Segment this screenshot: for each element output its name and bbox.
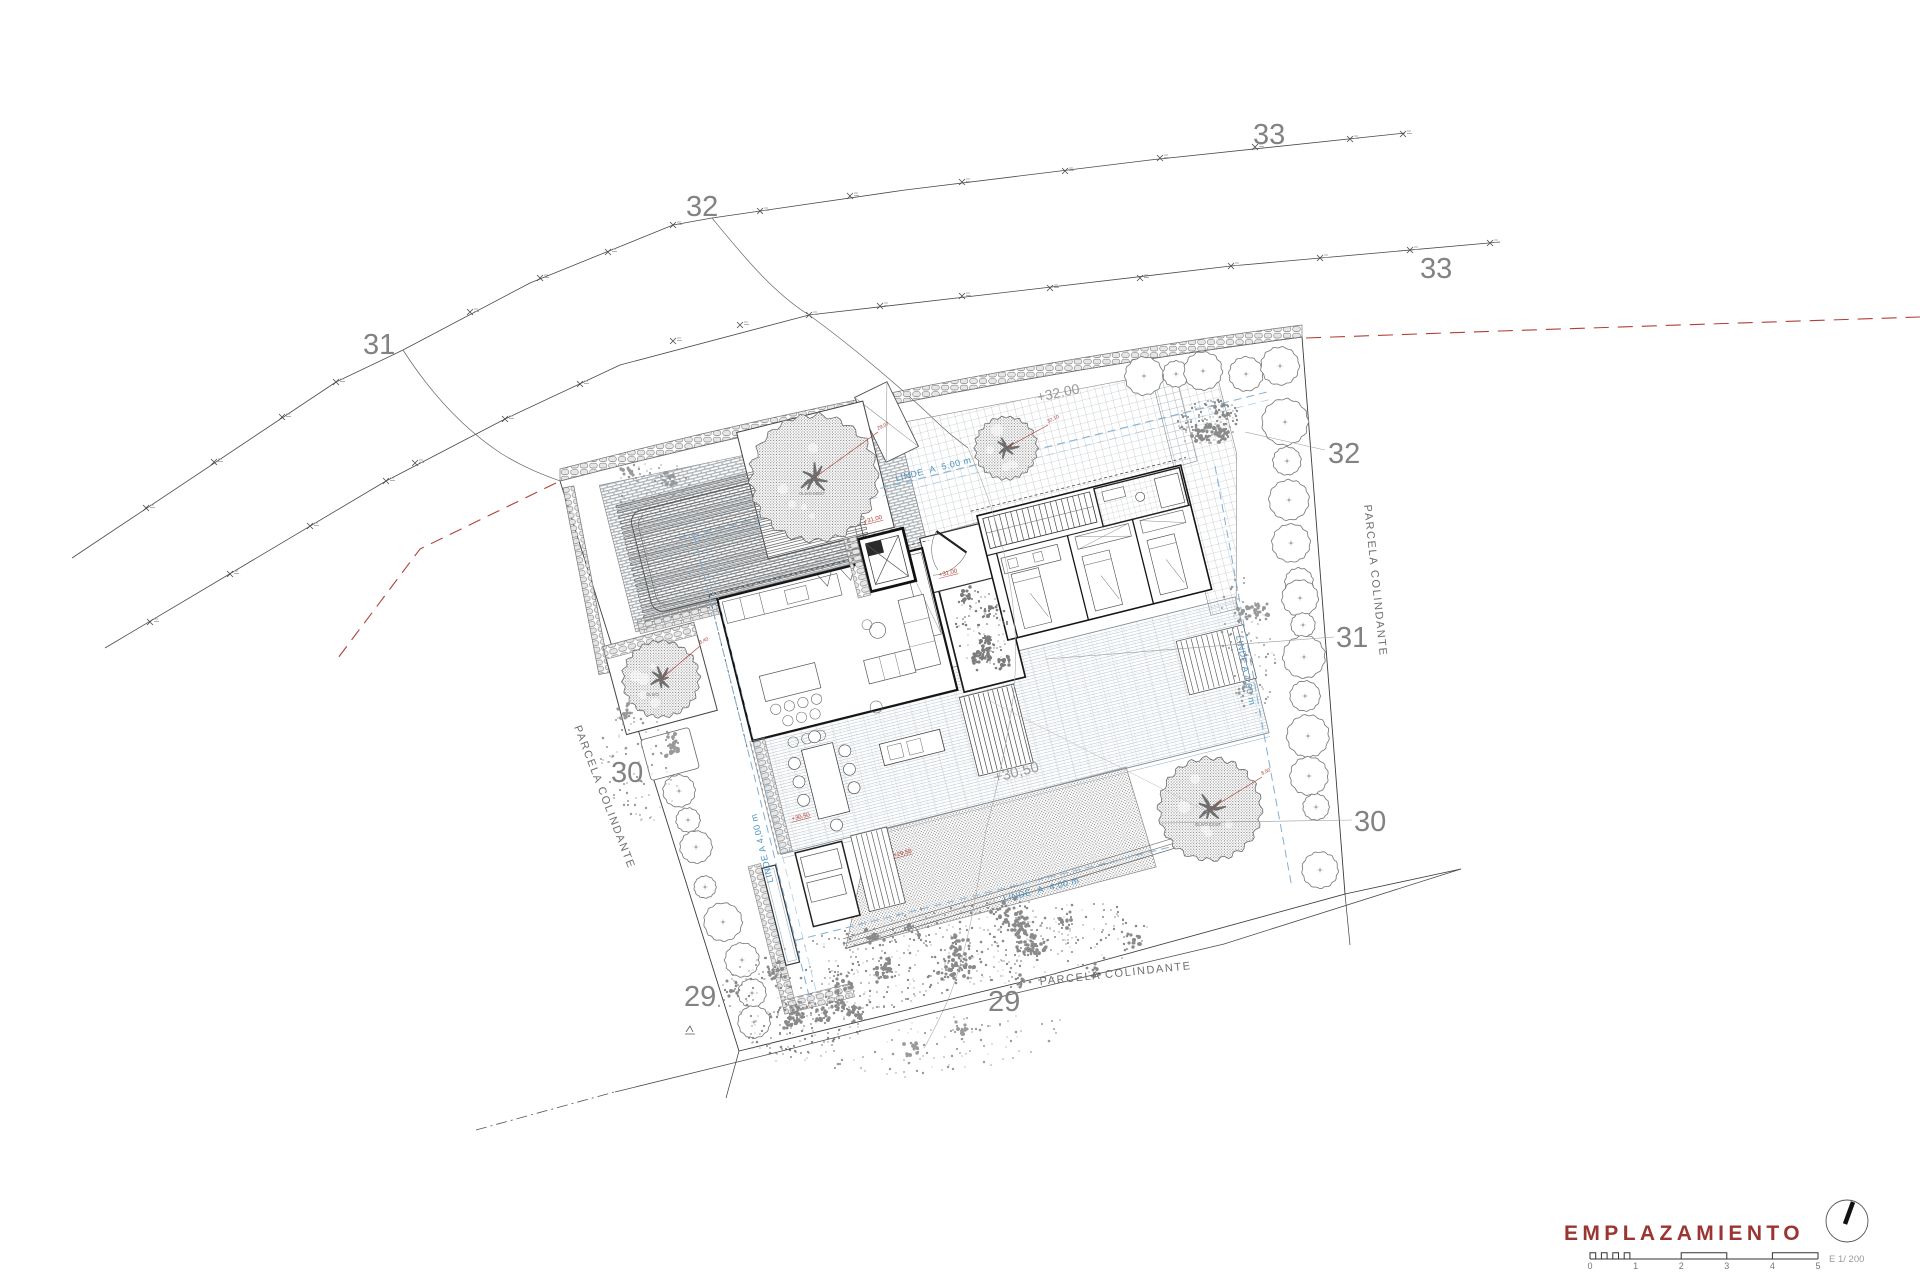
svg-text:0: 0 [1588,1261,1593,1271]
svg-text:2: 2 [1679,1261,1684,1271]
svg-text:OLIVO EXIST.: OLIVO EXIST. [1195,822,1222,827]
svg-text:3: 3 [1724,1261,1729,1271]
svg-text:30: 30 [611,757,643,789]
svg-text:1: 1 [1633,1261,1638,1271]
svg-text:31: 31 [363,329,395,361]
svg-text:OLIVO EXIST.: OLIVO EXIST. [799,491,826,496]
svg-text:5: 5 [1816,1261,1821,1271]
svg-text:29: 29 [684,981,716,1013]
svg-text:30: 30 [1354,806,1386,838]
svg-text:29: 29 [988,986,1020,1018]
svg-text:32: 32 [1328,438,1360,470]
svg-text:33: 33 [1420,253,1452,285]
svg-text:4: 4 [1770,1261,1775,1271]
svg-text:33: 33 [1253,119,1285,151]
svg-text:EMPLAZAMIENTO: EMPLAZAMIENTO [1564,1222,1804,1245]
svg-text:31: 31 [1336,622,1368,654]
svg-text:32: 32 [686,191,718,223]
svg-text:OLIVO: OLIVO [646,692,660,697]
svg-text:E 1/ 200: E 1/ 200 [1829,1254,1864,1265]
